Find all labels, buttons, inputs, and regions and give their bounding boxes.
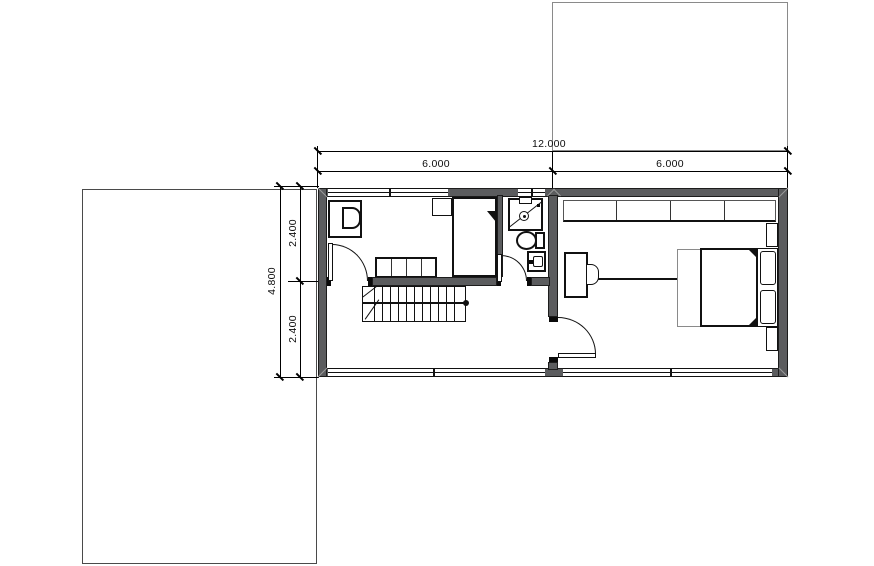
stair-walk-dot (463, 300, 469, 306)
door-stop (527, 277, 531, 286)
door-arc-studio (332, 244, 368, 281)
shower-valve (537, 204, 540, 207)
dim-label-total-width: 12.000 (519, 138, 579, 150)
wall-middle-horizontal-a (372, 277, 497, 286)
bench (375, 257, 437, 277)
floor-plan-canvas: 12.000 6.000 6.000 4.800 2.400 2.400 (0, 0, 874, 566)
dim-label-left-width: 6.000 (406, 158, 466, 170)
wall-middle-horizontal-b (531, 277, 550, 286)
toilet-tank (535, 232, 545, 249)
double-bed-duvet (700, 248, 758, 327)
bench-divider (391, 259, 392, 276)
dim-label-bottom-height: 2.400 (287, 299, 299, 359)
nightstand (766, 223, 778, 247)
wall-left (318, 188, 327, 377)
bed-foot-throw (677, 249, 702, 327)
dim-label-top-height: 2.400 (287, 203, 299, 263)
stair-walk-line (363, 302, 467, 304)
wardrobe-divider (616, 201, 617, 220)
chair-studio (342, 207, 361, 229)
window-mullion (389, 189, 391, 196)
side-table (432, 198, 452, 216)
window-top-bathroom (518, 188, 545, 197)
single-bed (452, 197, 497, 277)
window-glazing (328, 192, 448, 193)
wardrobe-divider (670, 201, 671, 220)
window-bottom-bedroom (563, 368, 772, 377)
pillow (760, 290, 776, 324)
dim-label-total-height: 4.800 (266, 251, 278, 311)
dimension-line-4800 (280, 186, 281, 377)
door-stop (549, 317, 558, 322)
window-mullion (670, 369, 672, 376)
nightstand (766, 327, 778, 351)
desk-bedroom (564, 252, 588, 298)
wall-middle-vertical-upper (548, 195, 558, 317)
bench-divider (406, 259, 407, 276)
window-top-studio (328, 188, 448, 197)
toilet-bowl (516, 231, 537, 250)
bench-divider (421, 259, 422, 276)
dim-label-right-width: 6.000 (640, 158, 700, 170)
window-glazing (328, 372, 545, 373)
wardrobe-divider (724, 201, 725, 220)
stair-risers (374, 287, 461, 321)
door-stop (368, 277, 372, 286)
pillow (760, 251, 776, 285)
window-mullion (433, 369, 435, 376)
sink-tap (529, 260, 533, 264)
extension-line-mid-left (288, 281, 319, 282)
door-arc-bathroom (501, 255, 527, 281)
shower-head (519, 197, 532, 204)
wall-right (778, 188, 788, 377)
window-mullion (531, 189, 533, 196)
door-arc-bedroom (558, 317, 596, 354)
chair-bedroom (586, 264, 599, 285)
rug-edge-line (598, 278, 678, 280)
window-glazing (563, 372, 772, 373)
dimension-line-12000 (318, 151, 788, 152)
wall-middle-vertical-lower (548, 362, 558, 370)
shower-drain-dot (523, 215, 526, 218)
sink-basin (533, 256, 543, 267)
door-stop (549, 357, 558, 362)
site-rectangle-upper (552, 2, 788, 151)
window-bottom-hall (328, 368, 545, 377)
wardrobe (563, 200, 776, 222)
